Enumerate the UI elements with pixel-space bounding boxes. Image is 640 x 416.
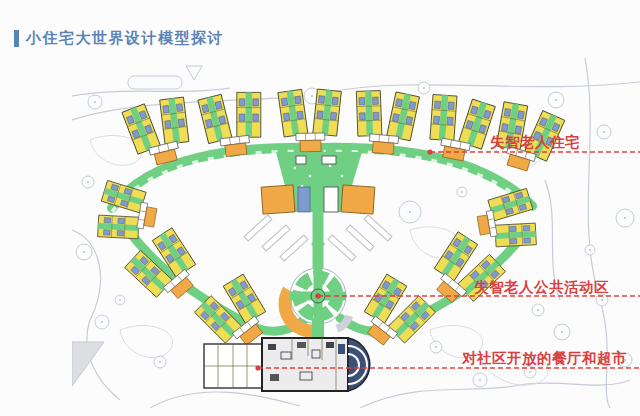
tree-center-dot <box>529 371 531 373</box>
annotation-label-dementia-housing: 失智老人住宅 <box>490 133 580 152</box>
tree-center-dot <box>119 299 121 301</box>
presentation-slide: 小住宅大世界设计模型探讨 <box>0 0 640 416</box>
tree-center-dot <box>101 321 103 323</box>
housing-cluster <box>351 272 437 358</box>
tree-center-dot <box>624 217 626 219</box>
annotation-label-public-activity-area: 失智老人公共活动区 <box>474 278 609 297</box>
site-plan: 失智老人住宅 失智老人公共活动区 对社区开放的餐厅和超市 <box>0 0 640 416</box>
housing-cluster <box>95 180 160 246</box>
tree-center-dot <box>589 249 591 251</box>
tree-center-dot <box>555 99 557 101</box>
tree-center-dot <box>311 95 313 97</box>
tree-center-dot <box>423 87 425 89</box>
tree-center-dot <box>83 251 85 253</box>
tree-center-dot <box>435 346 437 348</box>
tree-center-dot <box>87 181 89 183</box>
tree-center-dot <box>159 361 161 363</box>
tree-center-dot <box>94 101 96 103</box>
housing-cluster <box>421 230 507 316</box>
tree-center-dot <box>561 331 563 333</box>
tree-center-dot <box>461 191 463 193</box>
annotation-label-restaurant-supermarket: 对社区开放的餐厅和超市 <box>462 349 627 368</box>
tree-center-dot <box>409 211 411 213</box>
housing-cluster <box>474 188 539 254</box>
tree-center-dot <box>601 299 603 301</box>
tree-center-dot <box>537 309 539 311</box>
tree-center-dot <box>479 379 481 381</box>
tree-center-dot <box>603 131 605 133</box>
